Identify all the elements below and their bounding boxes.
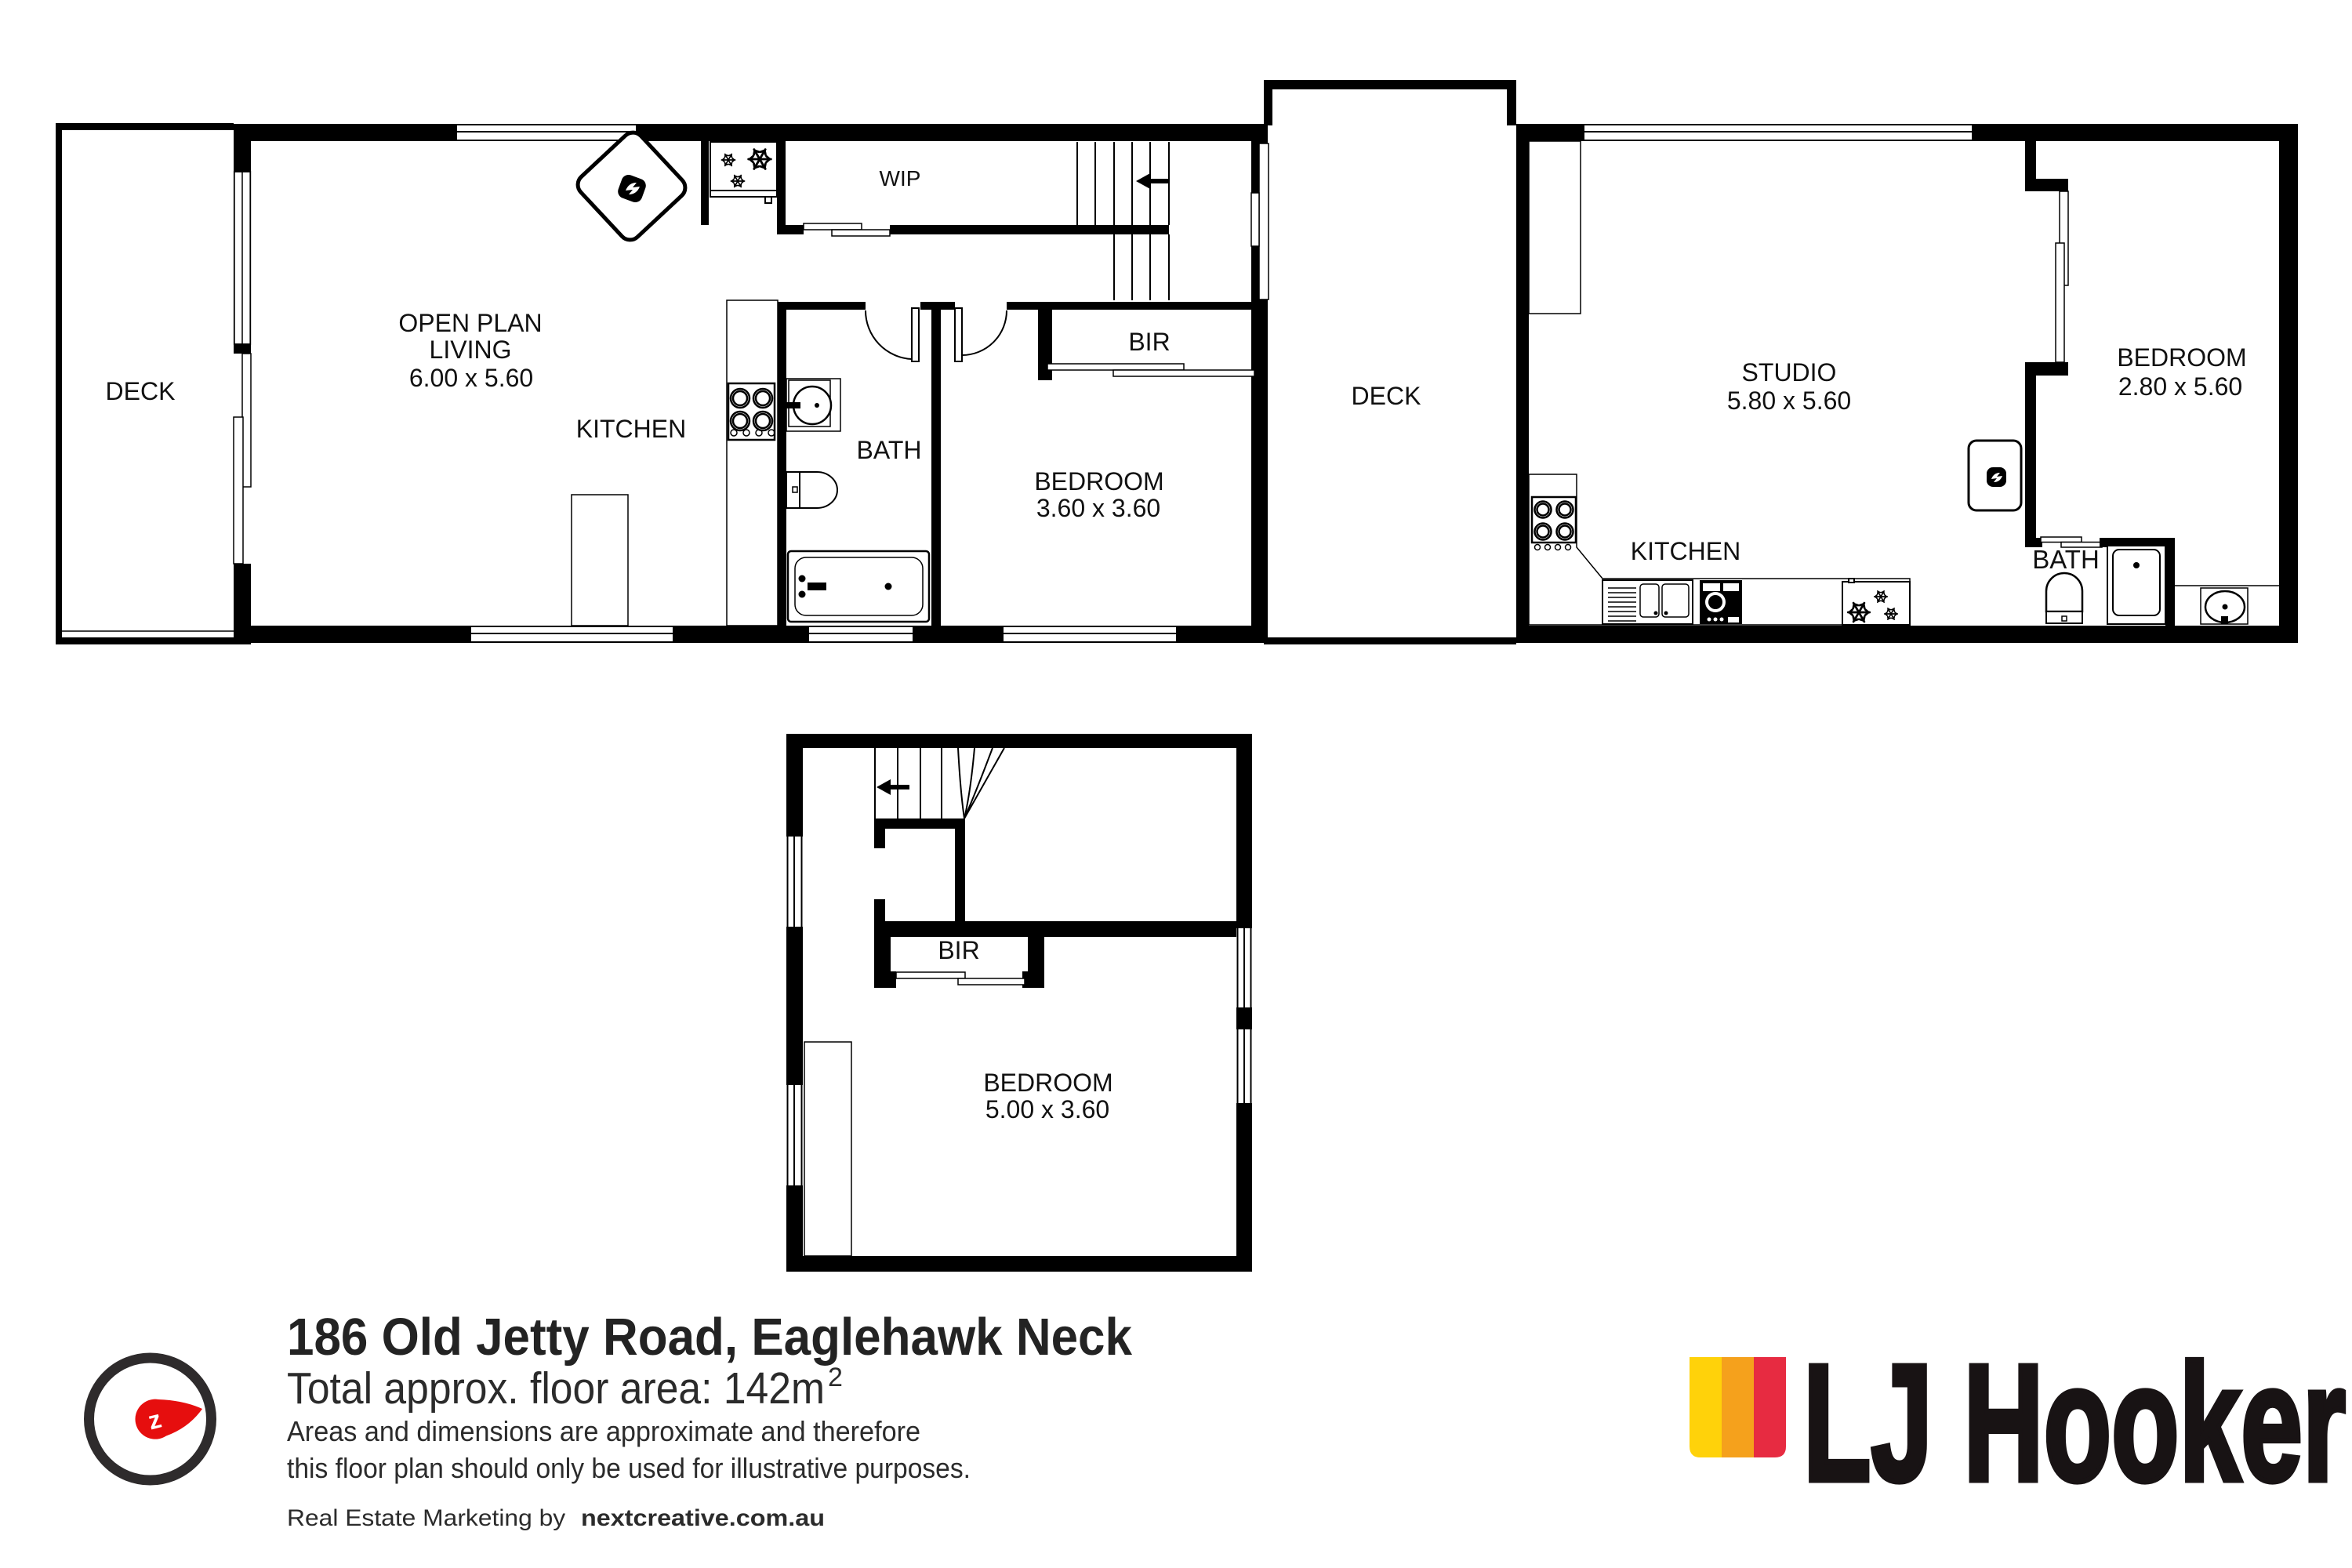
svg-text:LIVING: LIVING: [430, 336, 512, 364]
svg-text:BEDROOM: BEDROOM: [2117, 343, 2246, 372]
svg-text:3.60 x 3.60: 3.60 x 3.60: [1036, 494, 1160, 522]
svg-text:STUDIO: STUDIO: [1742, 358, 1837, 387]
svg-text:Total approx. floor area: 142m: Total approx. floor area: 142m: [287, 1363, 825, 1414]
svg-text:KITCHEN: KITCHEN: [576, 415, 686, 443]
svg-text:this floor plan should only be: this floor plan should only be used for …: [287, 1452, 971, 1484]
svg-text:BEDROOM: BEDROOM: [1034, 467, 1163, 495]
svg-text:BATH: BATH: [2032, 545, 2100, 574]
svg-text:Areas and dimensions are appro: Areas and dimensions are approximate and…: [287, 1415, 920, 1447]
svg-text:BIR: BIR: [938, 936, 979, 964]
svg-text:DECK: DECK: [106, 377, 176, 405]
svg-text:6.00 x 5.60: 6.00 x 5.60: [409, 364, 533, 392]
svg-text:186 Old Jetty Road, Eaglehawk: 186 Old Jetty Road, Eaglehawk Neck: [287, 1308, 1133, 1367]
svg-text:BIR: BIR: [1128, 328, 1170, 356]
svg-text:OPEN PLAN: OPEN PLAN: [398, 309, 542, 337]
svg-text:WIP: WIP: [880, 166, 921, 191]
svg-text:BATH: BATH: [857, 436, 922, 464]
svg-text:2.80 x 5.60: 2.80 x 5.60: [2118, 372, 2242, 401]
svg-text:LJ Hooker: LJ Hooker: [1803, 1330, 2346, 1515]
svg-text:5.00 x 3.60: 5.00 x 3.60: [985, 1095, 1109, 1123]
svg-text:DECK: DECK: [1352, 382, 1421, 410]
svg-text:BEDROOM: BEDROOM: [983, 1069, 1112, 1097]
svg-text:Real Estate Marketing by nextc: Real Estate Marketing by nextcreative.co…: [287, 1505, 825, 1531]
svg-text:KITCHEN: KITCHEN: [1631, 537, 1740, 565]
svg-text:2: 2: [828, 1363, 843, 1392]
svg-text:5.80 x 5.60: 5.80 x 5.60: [1727, 387, 1851, 415]
